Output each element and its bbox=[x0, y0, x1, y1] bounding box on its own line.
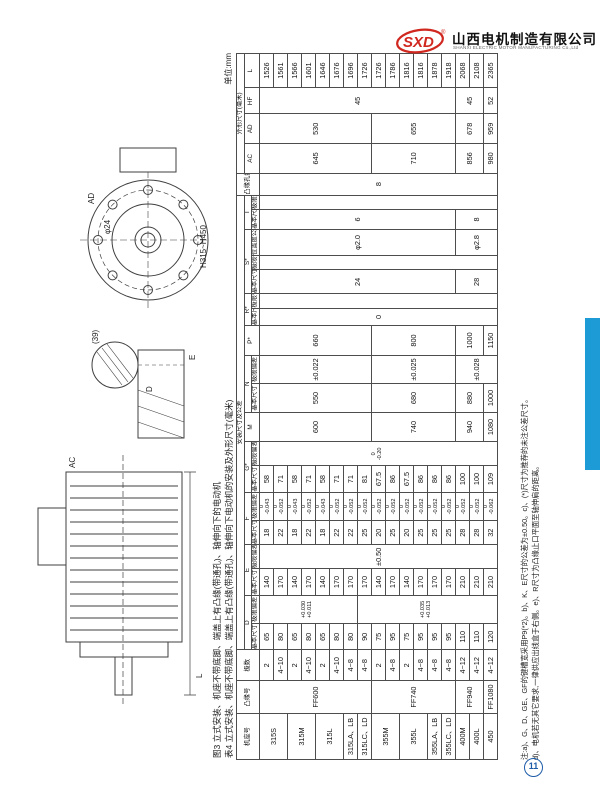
data-cell: 170 bbox=[273, 569, 287, 595]
table-notes: 注:a)、G、D、GE、GF的键槽宽采用P9(*2)。b)、K、E尺寸的公差为±… bbox=[520, 50, 542, 760]
header-cell: 极限偏差 bbox=[252, 595, 260, 623]
data-cell: 0-0.20 bbox=[259, 442, 497, 466]
svg-text:SXD: SXD bbox=[403, 34, 434, 51]
data-cell: 22 bbox=[343, 521, 357, 545]
data-cell: 660 bbox=[259, 326, 371, 356]
header-cell: 凸缘号 bbox=[237, 681, 260, 714]
data-cell: 58 bbox=[259, 466, 273, 492]
data-cell: 800 bbox=[371, 326, 455, 356]
data-cell: 65 bbox=[287, 624, 301, 650]
table-header: 机座号凸缘号极数安装尺寸及公差凸缘孔数外形尺寸(毫米)DEFG*MNP*R*S*… bbox=[237, 54, 260, 760]
data-cell: 80 bbox=[273, 624, 287, 650]
data-cell: FF600 bbox=[259, 681, 371, 714]
table-row: 450FF10804~12120210320-0.062109108010001… bbox=[483, 54, 497, 760]
data-cell: 0-0.043 bbox=[287, 492, 301, 520]
data-cell: 86 bbox=[441, 466, 455, 492]
header-cell: 基本尺寸 bbox=[252, 466, 260, 492]
data-cell: 100 bbox=[469, 466, 483, 492]
data-cell: 355LA、LB bbox=[427, 713, 441, 759]
data-cell: ±0.028 bbox=[455, 355, 497, 383]
dim-label-l: L bbox=[195, 673, 204, 678]
data-cell: 4~8 bbox=[427, 650, 441, 681]
data-cell: 550 bbox=[259, 384, 371, 412]
data-cell: 58 bbox=[315, 466, 329, 492]
table-caption: 表4 立式安装、机座不带底脚、端盖上有凸缘(带通孔)、轴伸向下电动机的安装及外形… bbox=[223, 400, 235, 758]
data-cell: 0-0.052 bbox=[329, 492, 343, 520]
data-cell: 170 bbox=[357, 569, 371, 595]
data-cell: 170 bbox=[441, 569, 455, 595]
data-cell: 1561 bbox=[273, 54, 287, 88]
header-cell: G* bbox=[244, 442, 252, 492]
data-cell: 140 bbox=[399, 569, 413, 595]
data-cell: 6 bbox=[259, 210, 455, 230]
data-cell: 140 bbox=[287, 569, 301, 595]
data-cell: 8 bbox=[455, 210, 497, 230]
data-cell: 210 bbox=[469, 569, 483, 595]
data-cell: 170 bbox=[413, 569, 427, 595]
data-cell: 65 bbox=[315, 624, 329, 650]
data-cell: 400L bbox=[469, 713, 483, 759]
data-cell: 170 bbox=[385, 569, 399, 595]
data-cell: 1000 bbox=[483, 384, 497, 412]
data-cell: 940 bbox=[455, 412, 483, 442]
header-cell: AD bbox=[244, 114, 259, 144]
dim-label-ad: AD bbox=[87, 193, 96, 204]
data-cell: 0-0.052 bbox=[371, 492, 385, 520]
header-cell: 外形尺寸(毫米) bbox=[237, 54, 245, 174]
data-cell: 1150 bbox=[483, 326, 497, 356]
data-cell: ±0.022 bbox=[259, 355, 371, 383]
data-cell: 81 bbox=[357, 466, 371, 492]
header-cell: 极限偏差 bbox=[252, 545, 260, 569]
data-cell: 25 bbox=[357, 521, 371, 545]
table-row: 400MFF9404~12110210280-0.052100940880±0.… bbox=[455, 54, 469, 760]
data-cell: 355L bbox=[399, 713, 427, 759]
data-cell: 1676 bbox=[329, 54, 343, 88]
data-cell: 355LC、LD bbox=[441, 713, 455, 759]
header-cell: 极限偏差 bbox=[252, 355, 260, 383]
data-cell: 315L bbox=[315, 713, 343, 759]
header-cell: E bbox=[244, 545, 252, 595]
data-cell: 4~12 bbox=[469, 650, 483, 681]
page-number-stamp: 11 bbox=[524, 758, 543, 777]
data-cell: 4~8 bbox=[413, 650, 427, 681]
data-cell: 530 bbox=[259, 114, 371, 144]
data-cell: 315S bbox=[259, 713, 287, 759]
data-cell: 67.5 bbox=[371, 466, 385, 492]
data-cell: 170 bbox=[427, 569, 441, 595]
data-cell: 450 bbox=[483, 713, 497, 759]
registered-mark: ® bbox=[441, 29, 446, 36]
header-cell: 极数 bbox=[237, 650, 260, 681]
data-cell: 170 bbox=[301, 569, 315, 595]
data-cell: 0-0.052 bbox=[273, 492, 287, 520]
data-cell: φ2.8 bbox=[455, 229, 497, 255]
data-cell: 645 bbox=[259, 144, 371, 174]
data-cell: 4~12 bbox=[483, 650, 497, 681]
data-cell: 18 bbox=[259, 521, 273, 545]
data-cell: 67.5 bbox=[399, 466, 413, 492]
data-cell: 20 bbox=[371, 521, 385, 545]
data-cell: 0-0.043 bbox=[315, 492, 329, 520]
header-cell: 位置度公差 bbox=[252, 229, 260, 255]
rotated-page-content: AC L (39) D E φ24 AD H315~H450 图3 立式安装、机… bbox=[20, 35, 565, 790]
data-cell: 2 bbox=[287, 650, 301, 681]
data-cell: 120 bbox=[483, 624, 497, 650]
data-cell: 655 bbox=[371, 114, 455, 144]
data-cell: 0-0.052 bbox=[357, 492, 371, 520]
data-cell: +0.030+0.011 bbox=[259, 595, 357, 623]
header-cell: S* bbox=[244, 229, 252, 294]
data-cell: 170 bbox=[329, 569, 343, 595]
data-cell: 20 bbox=[399, 521, 413, 545]
table-row: 机座号凸缘号极数安装尺寸及公差凸缘孔数外形尺寸(毫米) bbox=[237, 54, 245, 760]
data-cell: 86 bbox=[413, 466, 427, 492]
data-cell: 0-0.062 bbox=[483, 492, 497, 520]
data-cell: 2 bbox=[315, 650, 329, 681]
data-cell: 0-0.052 bbox=[455, 492, 469, 520]
data-cell: 71 bbox=[301, 466, 315, 492]
data-cell: 18 bbox=[315, 521, 329, 545]
data-cell bbox=[259, 256, 497, 270]
data-cell: 95 bbox=[413, 624, 427, 650]
data-cell: 315M bbox=[287, 713, 315, 759]
data-cell: 4~10 bbox=[301, 650, 315, 681]
data-cell: 22 bbox=[329, 521, 343, 545]
data-cell: φ2.0 bbox=[259, 229, 455, 255]
data-cell: 1526 bbox=[259, 54, 273, 88]
data-cell: 710 bbox=[371, 144, 455, 174]
data-cell: 959 bbox=[483, 114, 497, 144]
data-cell: 1726 bbox=[357, 54, 371, 88]
figure-caption: 图3 立式安装、机座不带底脚、端盖上有凸缘(带通孔)、轴伸向下的电动机 bbox=[211, 482, 223, 758]
data-cell: 75 bbox=[371, 624, 385, 650]
data-cell: 210 bbox=[483, 569, 497, 595]
data-cell: 58 bbox=[287, 466, 301, 492]
header-cell: 基本尺寸 bbox=[252, 270, 260, 294]
data-cell: 25 bbox=[441, 521, 455, 545]
data-cell: 315LA、LB bbox=[343, 713, 357, 759]
motor-outline-drawings: AC L (39) D E φ24 AD H315~H450 bbox=[20, 35, 210, 790]
header-cell: N bbox=[244, 355, 252, 412]
data-cell: 0-0.052 bbox=[399, 492, 413, 520]
data-cell: 109 bbox=[483, 466, 497, 492]
header-cell: 极限偏差 bbox=[252, 256, 260, 270]
data-cell: 1646 bbox=[315, 54, 329, 88]
header-cell: F bbox=[244, 492, 252, 545]
shaft-drawing bbox=[115, 657, 132, 695]
data-cell: 18 bbox=[287, 521, 301, 545]
header-cell: 安装尺寸及公差 bbox=[237, 195, 245, 650]
data-cell: +0.035+0.013 bbox=[357, 595, 497, 623]
data-cell: 95 bbox=[427, 624, 441, 650]
data-cell: 0-0.052 bbox=[301, 492, 315, 520]
data-cell: 355M bbox=[371, 713, 399, 759]
header-cell: R* bbox=[244, 294, 252, 326]
header-cell: 极限偏差 bbox=[252, 195, 260, 210]
frame-range-label: H315~H450 bbox=[199, 225, 208, 268]
header-cell: D bbox=[244, 595, 252, 650]
header-cell: 极限偏差 bbox=[252, 492, 260, 520]
data-cell: 75 bbox=[399, 624, 413, 650]
data-cell: 600 bbox=[259, 412, 371, 442]
data-cell: 25 bbox=[385, 521, 399, 545]
company-logo: SXD ® 山西电机制造有限公司 SHANXI ELECTRIC MOTOR M… bbox=[396, 24, 576, 66]
sxd-logo-icon: SXD ® bbox=[396, 26, 446, 56]
dim-label-ac: AC bbox=[68, 457, 77, 468]
data-cell: 4~8 bbox=[385, 650, 399, 681]
data-cell: 80 bbox=[329, 624, 343, 650]
data-cell bbox=[259, 294, 497, 308]
data-cell: 71 bbox=[329, 466, 343, 492]
data-cell: 110 bbox=[455, 624, 469, 650]
data-cell: 680 bbox=[371, 384, 455, 412]
data-cell: 880 bbox=[455, 384, 483, 412]
header-cell: P* bbox=[244, 326, 259, 356]
data-cell: 4~12 bbox=[455, 650, 469, 681]
data-cell: 22 bbox=[301, 521, 315, 545]
dim-label-e: E bbox=[188, 355, 197, 360]
data-cell: 45 bbox=[455, 88, 483, 114]
data-cell: 65 bbox=[259, 624, 273, 650]
data-cell: FF1080 bbox=[483, 681, 497, 714]
header-cell: AC bbox=[244, 144, 259, 174]
data-cell: 2 bbox=[259, 650, 273, 681]
data-cell: 856 bbox=[455, 144, 483, 174]
data-cell: 0-0.052 bbox=[441, 492, 455, 520]
data-cell: 1696 bbox=[343, 54, 357, 88]
data-cell: 2 bbox=[371, 650, 385, 681]
table-row: 355MFF740275140200-0.05267.5740680±0.025… bbox=[371, 54, 385, 760]
data-cell: 1566 bbox=[287, 54, 301, 88]
data-cell: 140 bbox=[371, 569, 385, 595]
data-cell: 0-0.052 bbox=[385, 492, 399, 520]
data-cell: 0-0.052 bbox=[427, 492, 441, 520]
data-cell: 28 bbox=[469, 521, 483, 545]
data-cell: 2 bbox=[399, 650, 413, 681]
data-cell: 210 bbox=[455, 569, 469, 595]
data-cell: 86 bbox=[427, 466, 441, 492]
table-row: 315SFF600265+0.030+0.011140±0.50180-0.04… bbox=[259, 54, 273, 760]
hole-dia-label: φ24 bbox=[103, 219, 112, 234]
data-cell: 28 bbox=[455, 270, 497, 294]
header-cell: 基本尺寸 bbox=[252, 308, 260, 326]
data-cell: 315LC、LD bbox=[357, 713, 371, 759]
data-cell: 71 bbox=[343, 466, 357, 492]
data-cell: 22 bbox=[273, 521, 287, 545]
note-line-2: d)、电机若无其它要求,一律供应出线盒于右侧。e)、R尺寸为凸缘止口平面至轴伸肩… bbox=[531, 50, 542, 760]
data-cell: 95 bbox=[385, 624, 399, 650]
data-cell: ±0.025 bbox=[371, 355, 455, 383]
header-cell: 基本尺寸 bbox=[252, 569, 260, 595]
data-cell: 71 bbox=[273, 466, 287, 492]
data-cell: 100 bbox=[455, 466, 469, 492]
data-cell: 86 bbox=[385, 466, 399, 492]
terminal-box-drawing bbox=[38, 508, 66, 565]
data-cell: FF940 bbox=[455, 681, 483, 714]
data-cell: 8 bbox=[259, 173, 497, 195]
data-cell: 980 bbox=[483, 144, 497, 174]
data-cell: 140 bbox=[315, 569, 329, 595]
data-cell: 4~8 bbox=[441, 650, 455, 681]
data-cell: 4~10 bbox=[329, 650, 343, 681]
note-line-1: 注:a)、G、D、GE、GF的键槽宽采用P9(*2)。b)、K、E尺寸的公差为±… bbox=[520, 50, 531, 760]
data-cell: 80 bbox=[301, 624, 315, 650]
data-cell: 400M bbox=[455, 713, 469, 759]
company-name-en: SHANXI ELECTRIC MOTOR MANUFACTURING Co.,… bbox=[453, 45, 578, 50]
detail-ref-label: (39) bbox=[91, 329, 100, 344]
header-cell: 基本尺寸 bbox=[252, 384, 260, 412]
data-cell: 1601 bbox=[301, 54, 315, 88]
data-cell: 0-0.052 bbox=[413, 492, 427, 520]
data-cell: 45 bbox=[259, 88, 455, 114]
header-cell: 基本尺寸 bbox=[252, 624, 260, 650]
data-cell: 28 bbox=[455, 521, 469, 545]
dim-label-d: D bbox=[145, 386, 154, 392]
header-cell: T bbox=[244, 195, 252, 229]
data-cell: FF740 bbox=[371, 681, 455, 714]
header-cell: M bbox=[244, 412, 259, 442]
catalog-page: { "page": { "unit_label": "单位:mm", "page… bbox=[0, 0, 600, 808]
data-cell: 1080 bbox=[483, 412, 497, 442]
data-cell: 4~8 bbox=[343, 650, 357, 681]
data-cell: 0-0.052 bbox=[343, 492, 357, 520]
dimension-table: 机座号凸缘号极数安装尺寸及公差凸缘孔数外形尺寸(毫米)DEFG*MNP*R*S*… bbox=[236, 53, 498, 760]
data-cell: 1000 bbox=[455, 326, 483, 356]
data-cell: 678 bbox=[455, 114, 483, 144]
data-cell: 4~10 bbox=[273, 650, 287, 681]
blue-side-tab[interactable] bbox=[585, 318, 600, 470]
header-cell: 极限偏差 bbox=[252, 294, 260, 308]
data-cell: 25 bbox=[427, 521, 441, 545]
data-cell: 25 bbox=[413, 521, 427, 545]
header-cell: 基本尺寸 bbox=[252, 521, 260, 545]
data-cell: 80 bbox=[343, 624, 357, 650]
data-cell: 90 bbox=[357, 624, 371, 650]
data-cell: 0-0.052 bbox=[469, 492, 483, 520]
header-cell: HF bbox=[244, 88, 259, 114]
data-cell: 0 bbox=[259, 308, 497, 326]
data-cell: 4~8 bbox=[357, 650, 371, 681]
header-cell: 机座号 bbox=[237, 713, 260, 759]
data-cell: 52 bbox=[483, 88, 497, 114]
unit-label: 单位:mm bbox=[223, 53, 234, 85]
data-cell bbox=[259, 195, 497, 210]
header-cell: 凸缘孔数 bbox=[237, 173, 260, 195]
header-cell: 基本尺寸 bbox=[252, 210, 260, 230]
data-cell: 170 bbox=[343, 569, 357, 595]
data-cell: 0-0.043 bbox=[259, 492, 273, 520]
data-cell: 32 bbox=[483, 521, 497, 545]
data-cell: 24 bbox=[259, 270, 455, 294]
table-body: 315SFF600265+0.030+0.011140±0.50180-0.04… bbox=[259, 54, 497, 760]
data-cell: ±0.50 bbox=[259, 545, 497, 569]
data-cell: 110 bbox=[469, 624, 483, 650]
data-cell: 95 bbox=[441, 624, 455, 650]
header-cell: L bbox=[244, 54, 259, 88]
header-cell: 极限偏差 bbox=[252, 442, 260, 466]
data-cell: 740 bbox=[371, 412, 455, 442]
data-cell: 140 bbox=[259, 569, 273, 595]
data-cell: 1726 bbox=[371, 54, 385, 88]
